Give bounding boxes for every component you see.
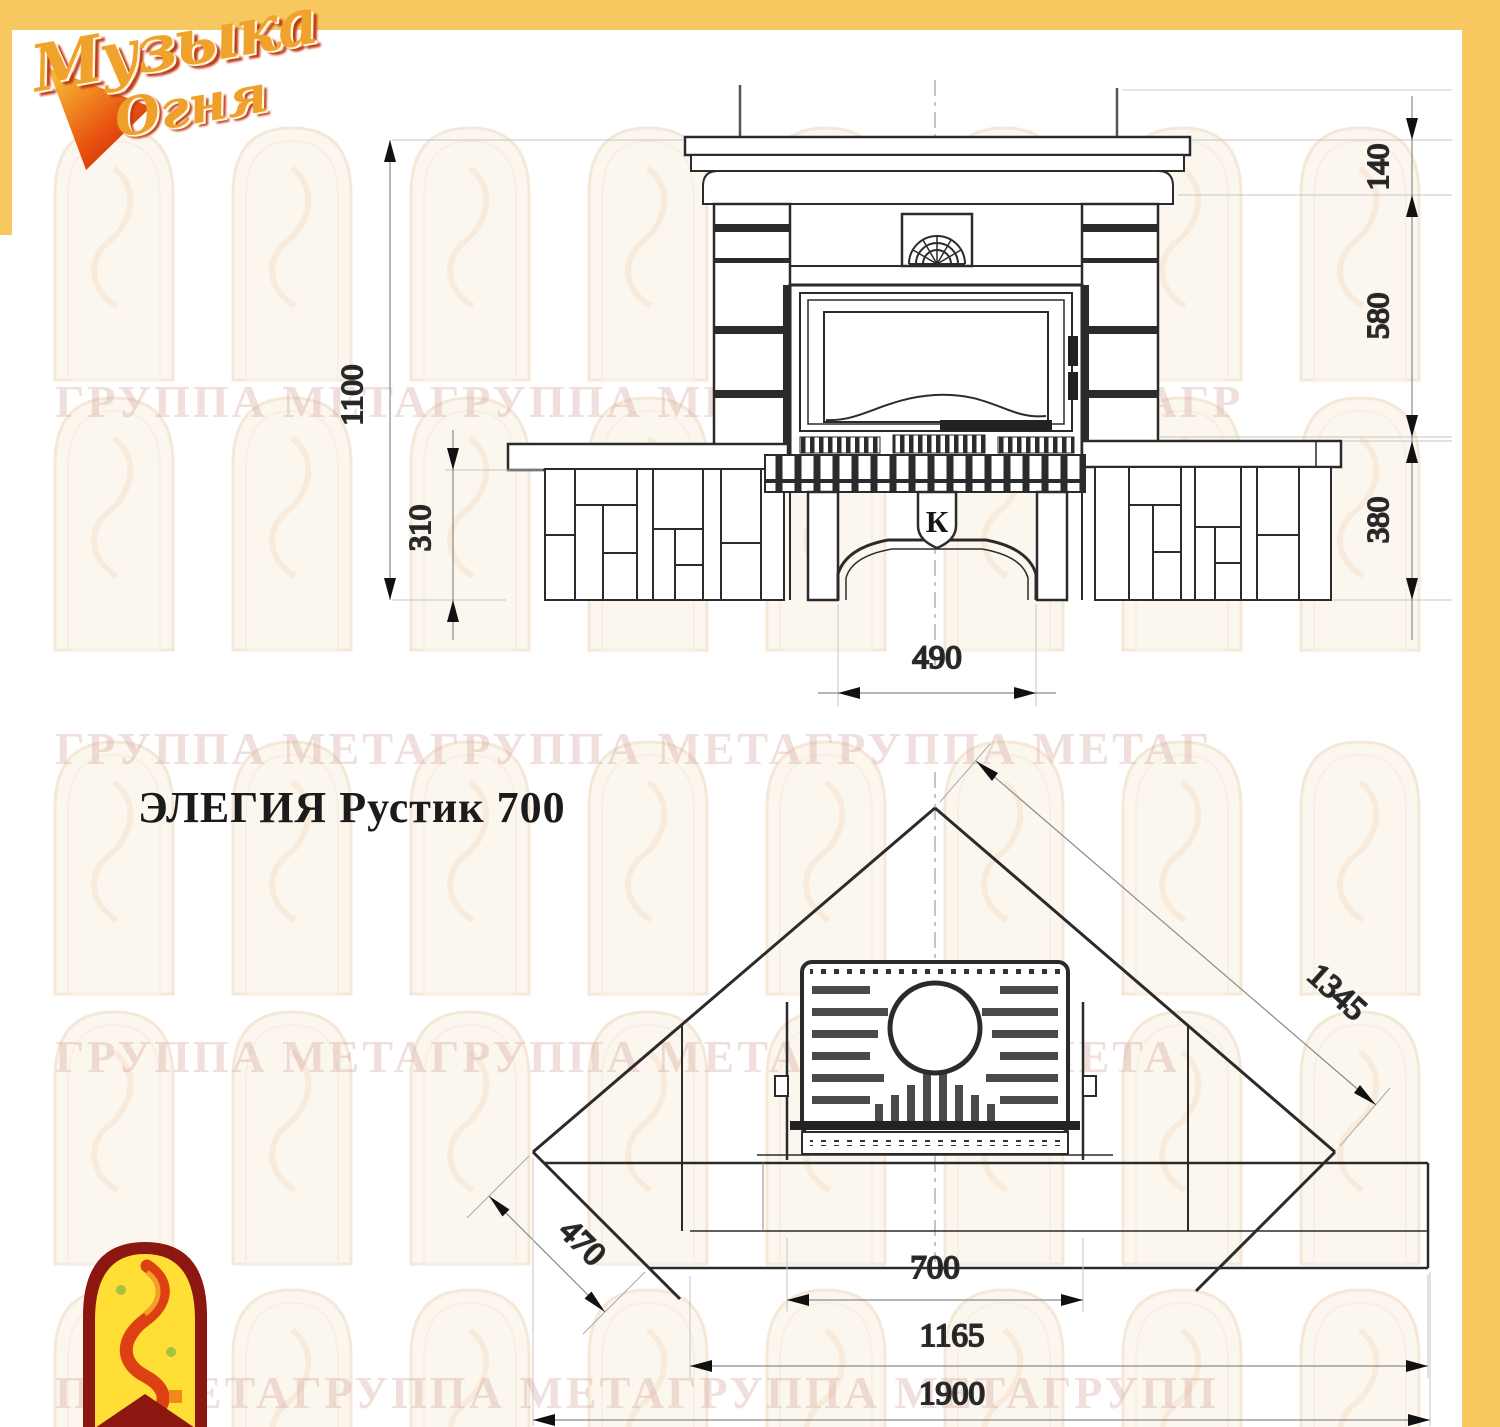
- dim-bench-length: [690, 1274, 1428, 1378]
- right-bench-slab: [1082, 441, 1341, 467]
- fan-emblem: [902, 214, 972, 266]
- center-base: К: [765, 455, 1085, 600]
- firebox-plan: [757, 962, 1113, 1160]
- mascot-flame-emblem: [75, 1232, 215, 1427]
- dim-label-310: 310: [402, 505, 437, 552]
- spec-sheet-page: ГРУППА МЕТАГРУППА МЕТАГРУППА МЕТАГР ГРУП…: [0, 0, 1500, 1427]
- dim-label-1100: 1100: [334, 365, 369, 426]
- flue-outlet: [890, 983, 980, 1073]
- technical-drawing: К 1100 310: [0, 0, 1500, 1427]
- vent-grille: [893, 435, 985, 453]
- dim-label-1900: 1900: [919, 1376, 985, 1412]
- firebox-door: [790, 285, 1082, 457]
- dim-label-380: 380: [1360, 497, 1395, 544]
- dim-label-1345: 1345: [1300, 957, 1373, 1028]
- pilaster: [1037, 492, 1067, 600]
- maker-shield-letter: К: [926, 504, 949, 539]
- plan-view-drawing: 1345 470 700: [467, 744, 1430, 1426]
- mantel-shelf: [685, 137, 1190, 155]
- model-title: ЭЛЕГИЯ Рустик 700: [138, 782, 566, 833]
- door-handle: [1068, 336, 1078, 366]
- baluster-row: [765, 455, 1085, 492]
- dim-label-140: 140: [1360, 144, 1395, 191]
- dim-label-580: 580: [1360, 293, 1395, 340]
- vent-grille: [998, 437, 1074, 453]
- bench-plan: [544, 1163, 1428, 1268]
- right-bench-edge: [1196, 1152, 1335, 1291]
- dim-label-490: 490: [912, 640, 962, 676]
- right-masonry: [1095, 467, 1331, 600]
- brand-logo: Музыка Огня: [16, 2, 316, 182]
- vent-grille: [800, 437, 880, 453]
- front-elevation-drawing: К 1100 310: [334, 80, 1452, 706]
- dim-side-depth: [467, 1156, 645, 1334]
- left-bench-slab: [508, 444, 788, 470]
- left-bench-edge: [533, 1152, 680, 1299]
- dim-label-1165: 1165: [920, 1318, 985, 1354]
- pilaster: [808, 492, 838, 600]
- left-masonry: [545, 469, 784, 600]
- dim-label-700: 700: [910, 1250, 960, 1286]
